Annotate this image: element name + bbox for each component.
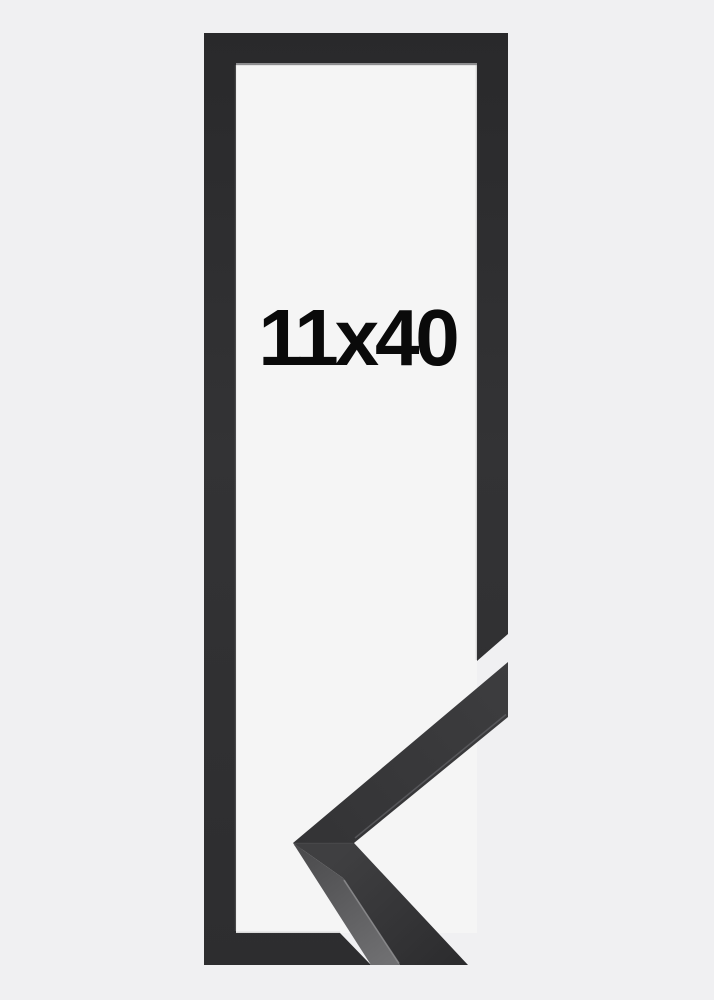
frame-inner-lip-bottom — [236, 932, 340, 934]
frame-inner-lip-left — [235, 65, 236, 931]
size-label: 11x40 — [258, 292, 455, 384]
frame-inner-lip-highlight — [236, 63, 477, 65]
frame-inner-lip-right — [476, 65, 477, 660]
frame-product-image: 11x40 — [0, 0, 714, 1000]
frame-graphic — [0, 0, 714, 1000]
